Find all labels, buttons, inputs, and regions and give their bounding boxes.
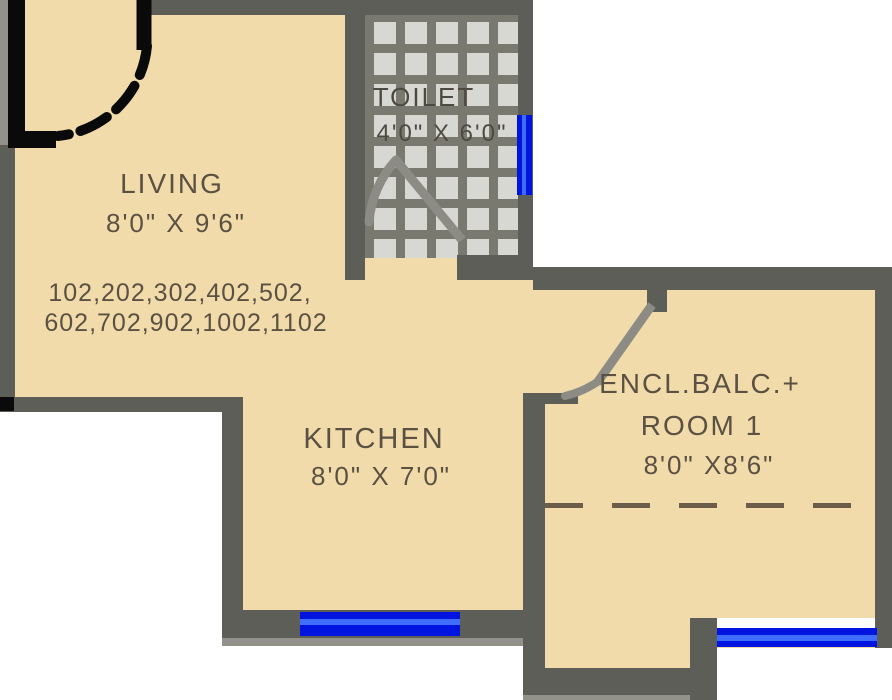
floor-plan: LIVING 8'0" X 9'6" 102,202,302,402,502, … — [0, 0, 892, 700]
wall-left-edge-shadow — [0, 0, 8, 150]
living-room-label: LIVING — [120, 170, 224, 198]
wall-room1-step — [690, 618, 717, 700]
room1-dims: 8'0" X8'6" — [644, 452, 775, 478]
wall-left — [0, 145, 15, 412]
entrance-door-jamb — [8, 0, 25, 140]
kitchen-window — [300, 612, 460, 636]
wall-room1-door-stub — [647, 283, 667, 312]
kitchen-label: KITCHEN — [303, 425, 444, 454]
outside-area — [717, 648, 892, 700]
wall-divider-top-cap — [545, 393, 578, 404]
wall-room1-bottom — [523, 668, 717, 695]
wall-living-step — [0, 397, 243, 412]
wall-toilet-bottom — [457, 255, 533, 280]
unit-numbers-line1: 102,202,302,402,502, — [48, 281, 311, 306]
room1-label-line2: ROOM 1 — [641, 412, 763, 440]
wall-room1-bottom-shadow — [523, 695, 717, 700]
balcony-divider-dashed-line — [545, 503, 877, 508]
wall-kitchen-left — [222, 397, 243, 638]
kitchen-dims: 8'0" X 7'0" — [311, 463, 451, 489]
wall-step-cap-left — [0, 397, 14, 411]
entrance-door-jamb-foot — [8, 131, 56, 148]
unit-numbers-line2: 602,702,902,1002,1102 — [44, 311, 327, 336]
outside-area — [0, 412, 222, 700]
wall-kitchen-bottom-shadow — [222, 638, 540, 646]
toilet-label: TOILET — [373, 84, 476, 110]
wall-top — [150, 0, 533, 15]
wall-divider-kitchen-room1 — [523, 393, 545, 700]
wall-toilet-left — [345, 0, 365, 280]
wall-right — [875, 267, 892, 648]
toilet-window — [517, 115, 532, 195]
room1-window — [717, 628, 877, 647]
wall-room1-top — [533, 267, 892, 290]
living-room-dims: 8'0" X 9'6" — [106, 210, 246, 236]
toilet-dims: 4'0" X 6'0" — [377, 122, 508, 146]
room1-label-line1: ENCL.BALC.+ — [599, 370, 801, 398]
outside-area — [717, 618, 877, 628]
